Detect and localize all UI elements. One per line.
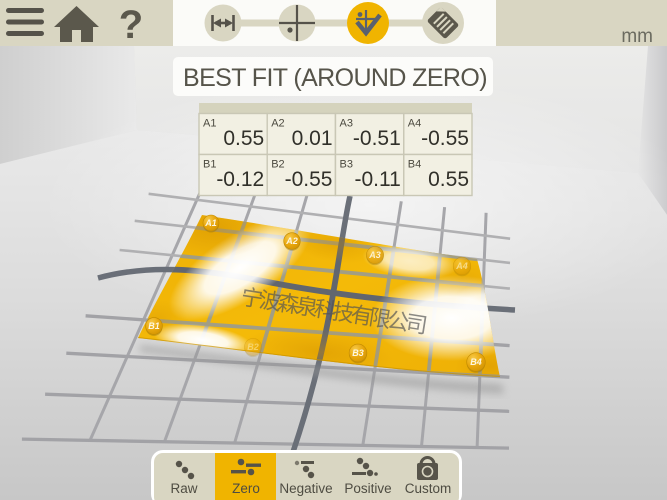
svg-text:0.55: 0.55 xyxy=(428,168,469,191)
svg-text:A3: A3 xyxy=(340,118,353,130)
svg-text:A4: A4 xyxy=(455,261,468,271)
svg-text:B4: B4 xyxy=(470,357,482,367)
svg-text:B3: B3 xyxy=(352,348,364,358)
svg-text:-0.55: -0.55 xyxy=(285,168,333,191)
svg-text:A2: A2 xyxy=(285,236,298,246)
svg-text:B2: B2 xyxy=(271,159,284,171)
svg-text:Positive: Positive xyxy=(344,481,391,496)
svg-text:B4: B4 xyxy=(408,159,421,171)
svg-text:0.55: 0.55 xyxy=(223,127,264,150)
svg-text:0.01: 0.01 xyxy=(292,127,333,150)
svg-text:B1: B1 xyxy=(148,321,160,331)
svg-text:B3: B3 xyxy=(340,159,353,171)
svg-text:A3: A3 xyxy=(368,250,381,260)
svg-text:Raw: Raw xyxy=(170,481,197,496)
svg-text:BEST FIT (AROUND ZERO): BEST FIT (AROUND ZERO) xyxy=(183,64,487,92)
svg-text:B2: B2 xyxy=(247,342,259,352)
svg-text:A4: A4 xyxy=(408,118,421,130)
svg-text:A2: A2 xyxy=(271,118,284,130)
svg-text:-0.11: -0.11 xyxy=(354,168,400,191)
svg-text:?: ? xyxy=(119,3,143,47)
svg-text:Zero: Zero xyxy=(232,481,260,496)
svg-text:Custom: Custom xyxy=(405,481,452,496)
svg-text:-0.51: -0.51 xyxy=(353,127,401,150)
svg-text:Negative: Negative xyxy=(279,481,332,496)
svg-text:-0.55: -0.55 xyxy=(421,127,469,150)
svg-text:-0.12: -0.12 xyxy=(216,168,264,191)
svg-text:mm: mm xyxy=(621,26,653,47)
svg-text:B1: B1 xyxy=(203,159,216,171)
svg-text:A1: A1 xyxy=(203,118,216,130)
svg-text:A1: A1 xyxy=(204,218,217,228)
